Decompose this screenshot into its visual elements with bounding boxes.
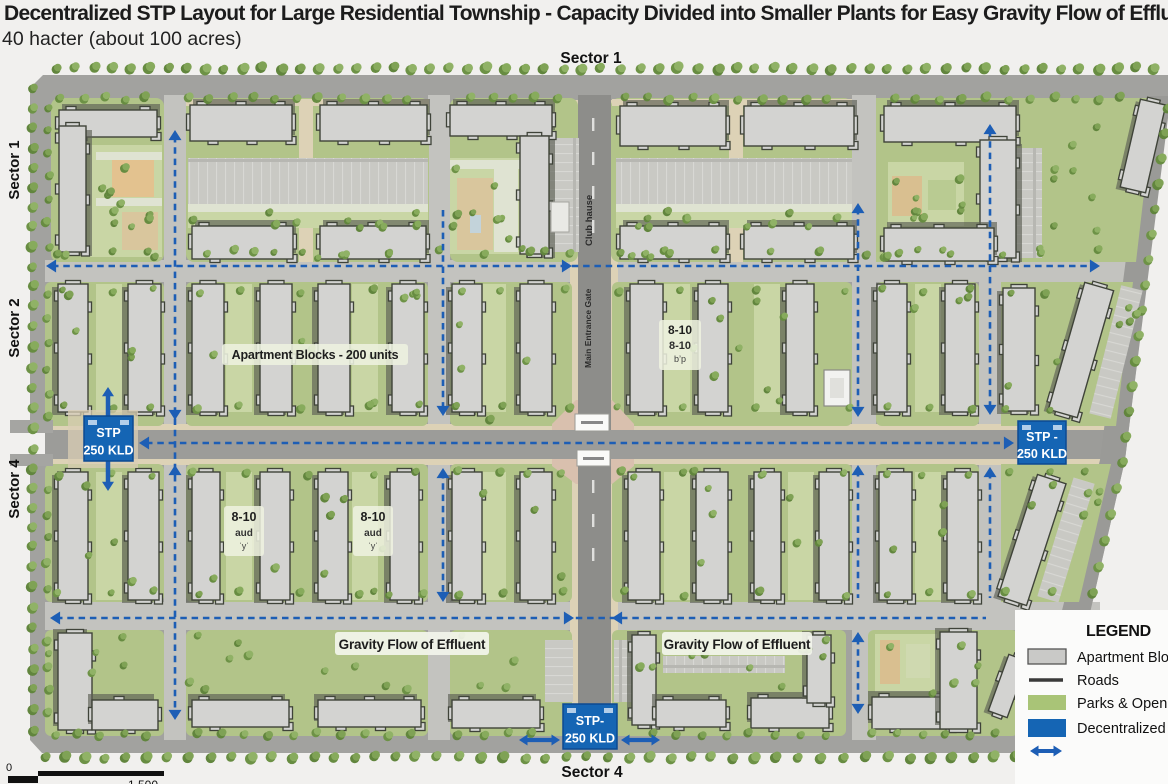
svg-text:Apartment Blocks - 200 units: Apartment Blocks - 200 units [232,348,399,362]
svg-text:ˈyˈ: ˈyˈ [368,541,379,551]
svg-text:Club hause: Club hause [584,195,595,246]
svg-text:1,500: 1,500 [128,778,158,784]
svg-text:ˈyˈ: ˈyˈ [239,541,250,551]
svg-text:Sector 1: Sector 1 [6,140,23,199]
svg-text:8-10: 8-10 [231,510,256,524]
svg-text:Sector 2: Sector 2 [6,298,23,357]
svg-text:8-10: 8-10 [668,323,692,337]
svg-text:250 KLD: 250 KLD [83,444,133,458]
svg-text:Sector 4: Sector 4 [561,764,623,781]
svg-text:Apartment Block: Apartment Block [1077,650,1168,666]
svg-text:Decentralized ST: Decentralized ST [1077,721,1168,737]
svg-text:Gravity Flow of Effluent: Gravity Flow of Effluent [339,637,486,652]
svg-text:Parks & Open Sp: Parks & Open Sp [1077,696,1168,712]
svg-text:250 KLD: 250 KLD [565,732,615,746]
svg-text:Decentralized STP Layout for L: Decentralized STP Layout for Large Resid… [4,2,1168,25]
svg-text:STP: STP [96,426,120,440]
svg-text:Sector 4: Sector 4 [6,459,23,519]
svg-text:Gravity Flow of Effluent: Gravity Flow of Effluent [664,637,811,652]
svg-text:Roads: Roads [1077,673,1119,689]
svg-text:8-10: 8-10 [669,340,691,352]
svg-text:aud: aud [235,528,253,539]
svg-text:LEGEND: LEGEND [1086,623,1151,640]
svg-text:0: 0 [6,762,12,774]
svg-text:b’p: b’p [674,354,686,364]
svg-text:Main Entrance Gate: Main Entrance Gate [583,288,593,368]
svg-text:Sector 1: Sector 1 [560,50,622,67]
svg-text:aud: aud [364,528,382,539]
svg-text:8-10: 8-10 [360,510,385,524]
svg-text:40 hacter (about 100 acres): 40 hacter (about 100 acres) [2,28,242,50]
svg-text:STP -: STP - [1026,430,1058,444]
svg-text:STP-: STP- [576,714,604,728]
svg-text:250 KLD: 250 KLD [1017,447,1067,461]
